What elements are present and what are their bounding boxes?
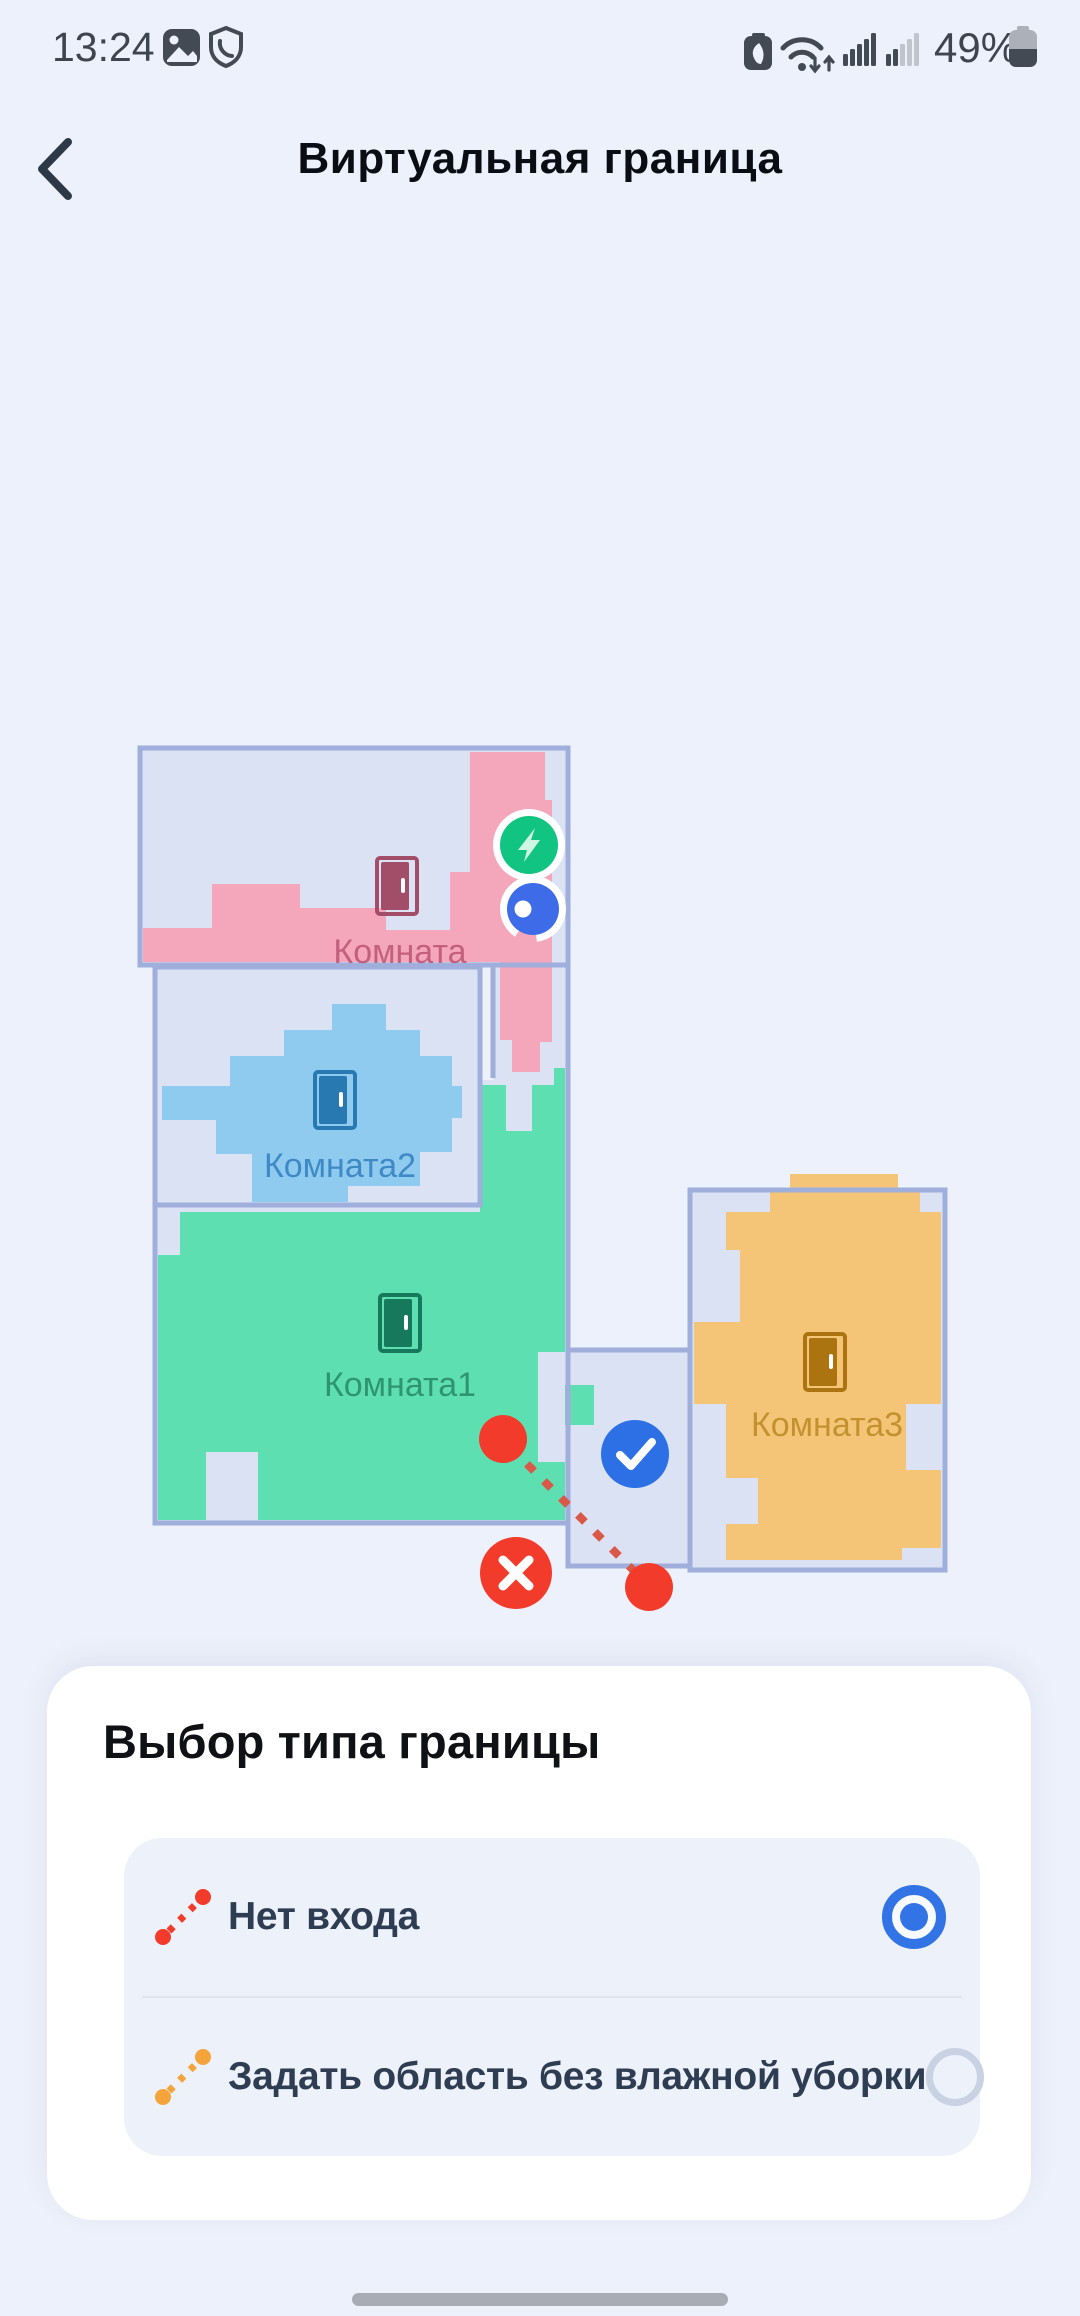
option-no-entry-label: Нет входа (228, 1895, 882, 1939)
battery-saver-icon (744, 33, 772, 70)
boundary-type-options: Нет входа Задать область без влажной убо… (124, 1838, 980, 2156)
wifi-icon (783, 40, 833, 71)
room-label-green[interactable]: Комната1 (324, 1366, 476, 1404)
status-bar: 13:24 (0, 0, 1080, 90)
boundary-handle-start[interactable] (479, 1415, 527, 1463)
delete-boundary-button[interactable] (480, 1537, 552, 1609)
radio-no-mop-zone[interactable] (926, 2048, 984, 2106)
room-label-pink[interactable]: Комната (333, 933, 466, 971)
screen: 13:24 (0, 0, 1080, 2316)
gallery-icon (163, 29, 200, 66)
boundary-type-sheet: Выбор типа границы Нет входа (47, 1666, 1031, 2220)
confirm-boundary-button[interactable] (601, 1420, 669, 1488)
boundary-handle-end[interactable] (625, 1563, 673, 1611)
page-title: Виртуальная граница (0, 134, 1080, 184)
option-no-mop-zone-label: Задать область без влажной уборки (228, 2055, 926, 2099)
sheet-title: Выбор типа границы (103, 1714, 600, 1769)
charging-dock-icon (493, 809, 565, 881)
signal-bars-icon (843, 33, 876, 66)
status-battery-percent: 49% (934, 24, 1018, 71)
room-label-blue[interactable]: Комната2 (264, 1147, 416, 1185)
room-label-orange[interactable]: Комната3 (751, 1406, 903, 1444)
option-no-entry[interactable]: Нет входа (124, 1838, 980, 1996)
room-map[interactable]: Комната Комната2 Комната1 Комната3 (0, 700, 1080, 1640)
battery-icon (1009, 26, 1037, 67)
shield-phone-icon (211, 28, 241, 66)
radio-no-entry[interactable] (882, 1885, 946, 1949)
status-time: 13:24 (52, 24, 155, 70)
dashed-line-red-icon (154, 1888, 212, 1946)
home-indicator[interactable] (352, 2293, 728, 2306)
signal-bars-weak-icon (886, 33, 919, 66)
header: Виртуальная граница (0, 118, 1080, 208)
dashed-line-orange-icon (154, 2048, 212, 2106)
map-area: Комната Комната2 Комната1 Комната3 (0, 700, 1080, 1640)
robot-vacuum-icon (504, 880, 562, 938)
option-no-mop-zone[interactable]: Задать область без влажной уборки (124, 1998, 980, 2156)
